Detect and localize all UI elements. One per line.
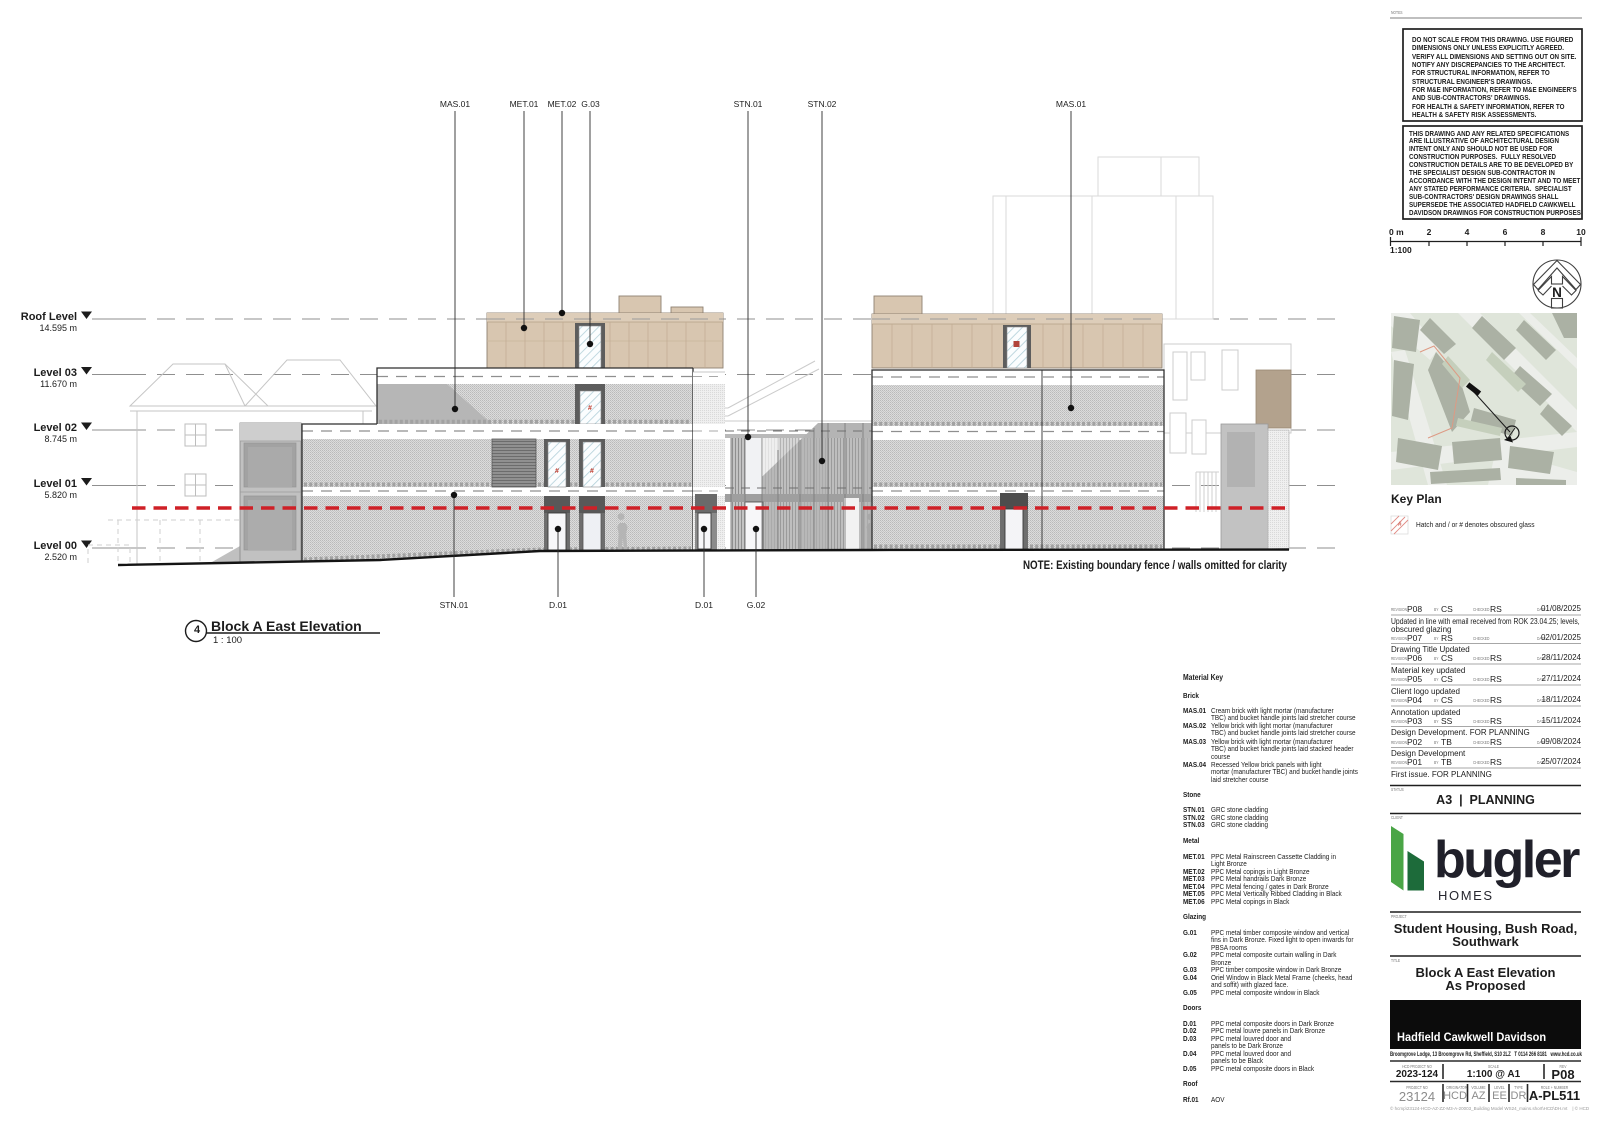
svg-text:#: #: [590, 468, 594, 475]
svg-text:#: #: [555, 468, 559, 475]
svg-text:#: #: [588, 405, 592, 412]
